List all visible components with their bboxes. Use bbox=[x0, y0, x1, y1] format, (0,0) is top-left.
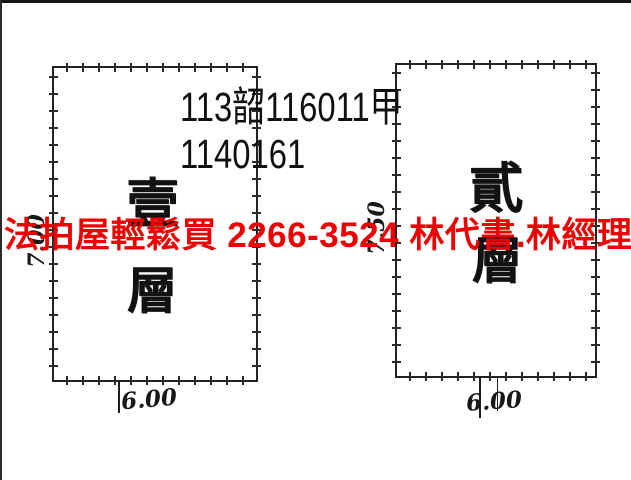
scanned-floor-plan-document: 113韶116011甲 1140161 壹 層 貳 層 7.00 7.50 6.… bbox=[0, 0, 631, 480]
case-number-line2: 1140161 bbox=[180, 131, 402, 178]
floor-label-first-char2: 層 bbox=[127, 251, 177, 323]
case-number-line1: 113韶116011甲 bbox=[180, 84, 402, 131]
floor-label-second-char1: 貳 bbox=[469, 144, 523, 223]
dimension-first-bottom: 6.00 bbox=[120, 384, 178, 416]
dimension-second-bottom: 6.00 bbox=[465, 386, 523, 417]
survey-ticks-bottom bbox=[52, 376, 258, 385]
scan-left-edge bbox=[0, 0, 2, 480]
ad-overlay-text: 法拍屋輕鬆買 2266-3524 林代書.林經理 bbox=[4, 217, 631, 255]
survey-ticks-top bbox=[395, 60, 597, 69]
survey-ticks-bottom bbox=[395, 372, 597, 381]
scan-top-edge bbox=[0, 0, 631, 3]
case-number: 113韶116011甲 1140161 bbox=[180, 84, 402, 178]
survey-ticks-top bbox=[52, 63, 258, 72]
